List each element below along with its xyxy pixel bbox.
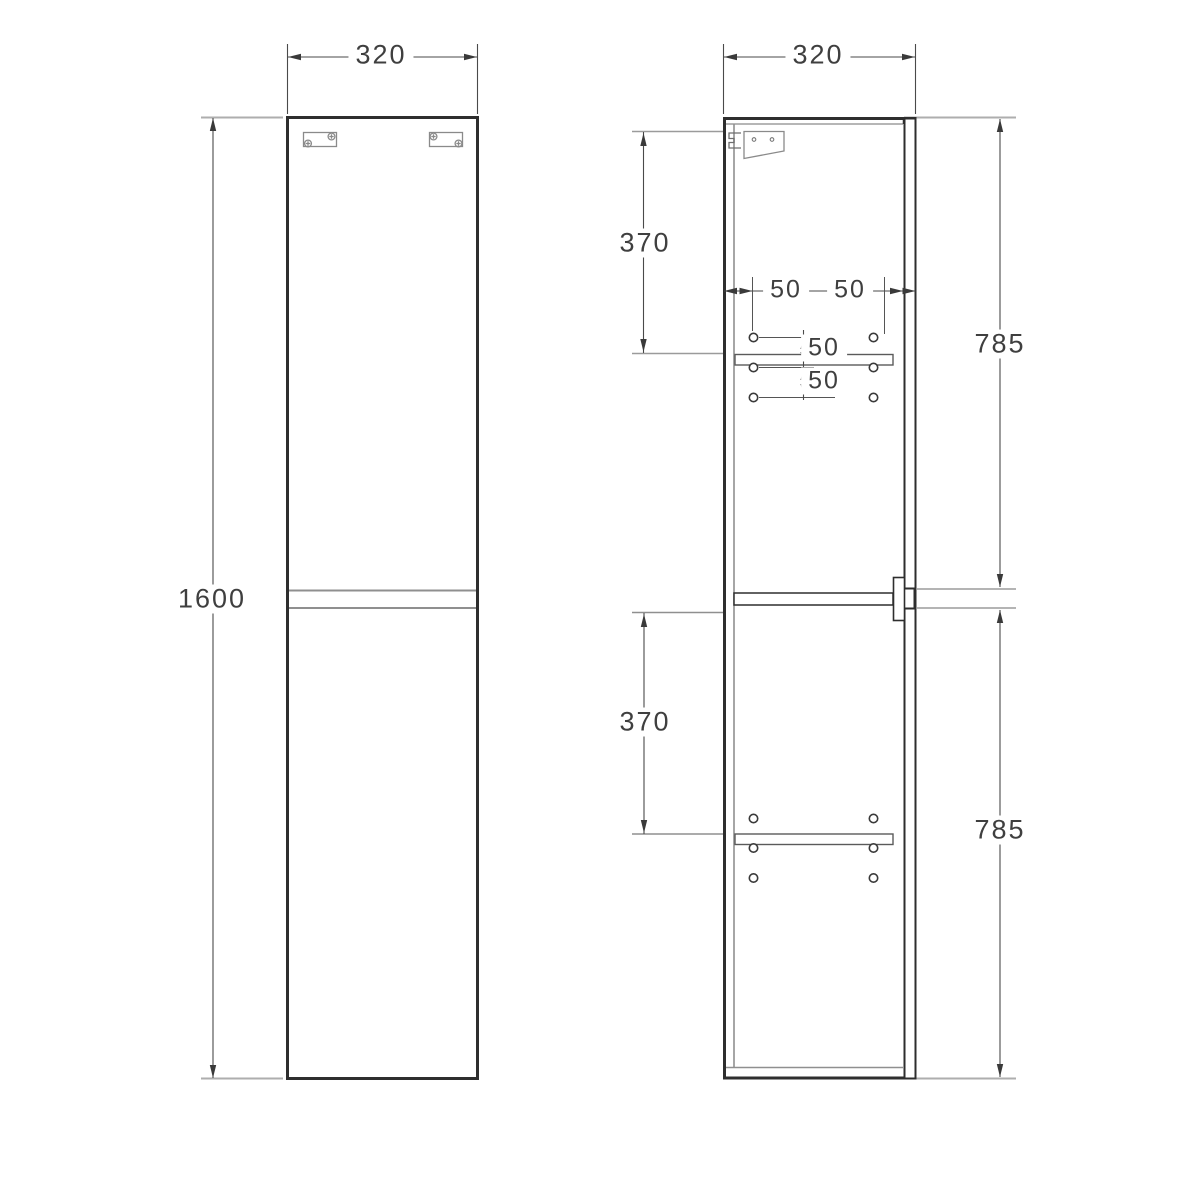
technical-drawing-canvas: 320 1600 320 370 370 785 785 50 50 50 50	[0, 0, 1200, 1200]
side-view	[632, 118, 1016, 1079]
side-middle-divider	[734, 593, 893, 605]
arrow-down	[641, 820, 647, 833]
arrow-up	[641, 614, 647, 627]
arrow-down	[210, 1065, 216, 1078]
side-width-label: 320	[785, 41, 850, 70]
front-width-label: 320	[348, 41, 413, 70]
front-height-label: 1600	[171, 585, 253, 614]
hole-inset-left-label: 50	[763, 277, 809, 304]
side-door-handle-tab	[894, 578, 905, 621]
arrow-up	[997, 119, 1003, 132]
hole-inset-right-label: 50	[827, 277, 873, 304]
lower-shelf-offset-label: 370	[612, 708, 677, 737]
side-lower-shelf	[735, 834, 893, 845]
arrow-left	[288, 54, 301, 60]
upper-shelf-offset-label: 370	[612, 229, 677, 258]
arrow-down	[997, 1064, 1003, 1077]
arrow-up	[640, 133, 646, 146]
side-lower-door	[905, 609, 916, 1079]
front-cabinet-body	[288, 118, 478, 1079]
arrow-down	[640, 339, 646, 352]
arrow-up	[997, 610, 1003, 623]
upper-door-height-label: 785	[967, 330, 1032, 359]
arrow-up	[210, 118, 216, 131]
arrow-left	[724, 54, 737, 60]
arrow-down	[997, 574, 1003, 587]
arrow-right	[464, 54, 477, 60]
lower-door-height-label: 785	[967, 816, 1032, 845]
hole-pitch-lower-label: 50	[801, 368, 847, 395]
side-upper-door	[905, 119, 916, 589]
arrow-right	[902, 54, 915, 60]
hole-pitch-upper-label: 50	[801, 335, 847, 362]
